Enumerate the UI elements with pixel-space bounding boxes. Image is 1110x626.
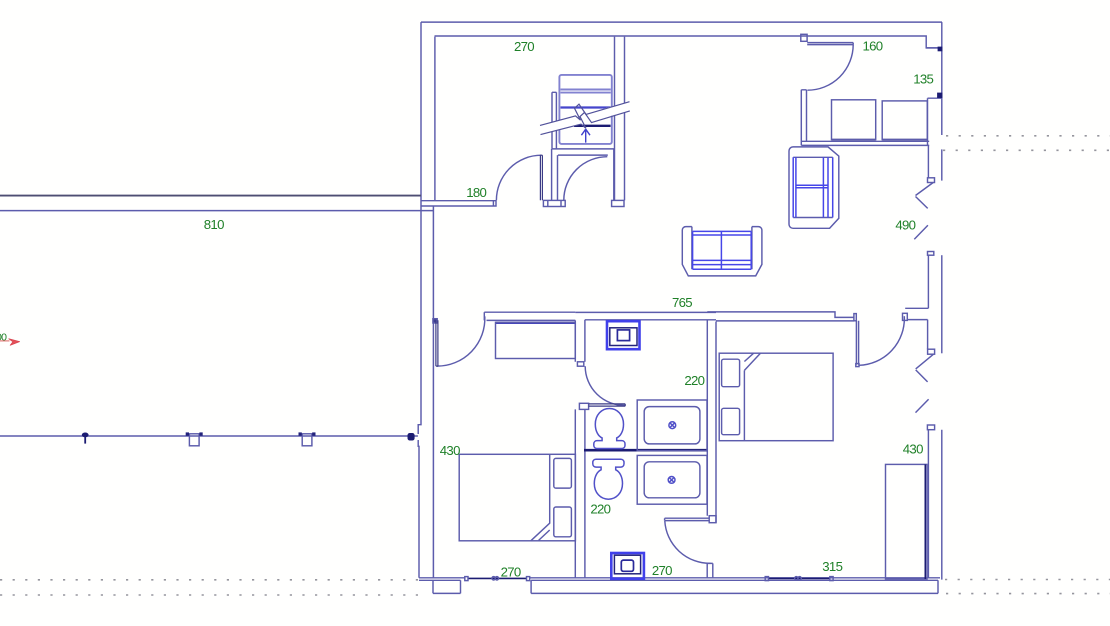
svg-text:270: 270 bbox=[652, 563, 672, 578]
svg-text:430: 430 bbox=[903, 441, 923, 456]
svg-text:270: 270 bbox=[514, 39, 534, 54]
svg-text:220: 220 bbox=[590, 502, 610, 517]
svg-text:490: 490 bbox=[895, 217, 915, 232]
svg-text:160: 160 bbox=[863, 39, 883, 54]
svg-text:810: 810 bbox=[204, 217, 224, 232]
svg-text:00: 00 bbox=[0, 332, 7, 344]
svg-text:270: 270 bbox=[501, 565, 521, 580]
svg-text:135: 135 bbox=[913, 71, 933, 86]
svg-text:430: 430 bbox=[440, 443, 460, 458]
svg-text:220: 220 bbox=[684, 373, 704, 388]
svg-text:315: 315 bbox=[822, 559, 842, 574]
svg-text:180: 180 bbox=[466, 185, 486, 200]
svg-text:765: 765 bbox=[672, 295, 692, 310]
